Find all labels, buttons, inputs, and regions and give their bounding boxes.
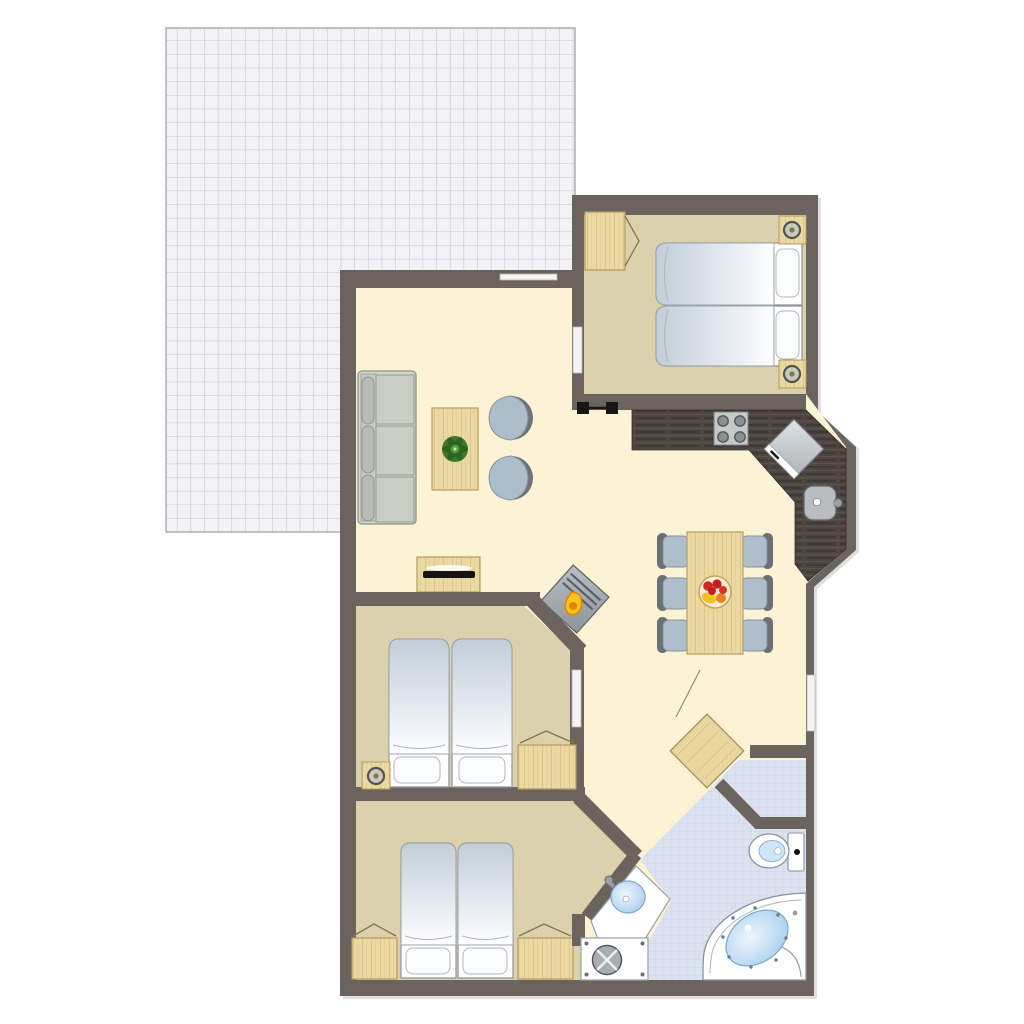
cooktop — [714, 412, 748, 445]
bedroom-master-left-wall — [572, 195, 584, 410]
pillow — [776, 311, 799, 359]
tv — [423, 571, 475, 578]
nightstand-lamp — [362, 762, 390, 789]
flush-button — [794, 849, 800, 855]
niche-top-wall — [750, 745, 806, 758]
lounge-chair — [489, 456, 533, 500]
pillow — [406, 948, 450, 974]
dining-chair — [741, 533, 773, 569]
dining-chair — [657, 617, 689, 653]
bedroom-middle-top-wall — [340, 592, 540, 606]
floor-plan-canvas — [0, 0, 1024, 1024]
pillow — [459, 757, 505, 783]
pillow — [394, 757, 440, 783]
niche-bottom-wall — [756, 817, 806, 829]
double-bed — [656, 243, 802, 366]
window-bedroom-middle — [572, 670, 581, 727]
dining-chair — [741, 617, 773, 653]
shower — [581, 938, 648, 980]
dining-chair — [741, 575, 773, 611]
pillow — [776, 249, 799, 297]
dining-area — [657, 532, 773, 654]
dining-chair — [657, 575, 689, 611]
dining-chair — [657, 533, 689, 569]
bedroom-middle — [340, 592, 585, 801]
window-bedroom-master — [573, 327, 582, 373]
tv-sideboard — [417, 557, 480, 592]
fruit-bowl — [699, 576, 731, 608]
floor-plan-page — [0, 0, 1024, 1024]
wardrobe — [585, 212, 625, 270]
lounge-chair — [489, 396, 533, 440]
nightstand-lamp — [779, 216, 806, 244]
window-dining-right — [807, 675, 815, 731]
sofa — [358, 371, 416, 524]
pillow — [463, 948, 507, 974]
nightstand-lamp — [779, 360, 806, 388]
toilet — [749, 833, 804, 871]
bedroom-master — [572, 195, 806, 410]
window-living-top — [500, 274, 557, 280]
tv-screen-arc — [426, 565, 472, 571]
